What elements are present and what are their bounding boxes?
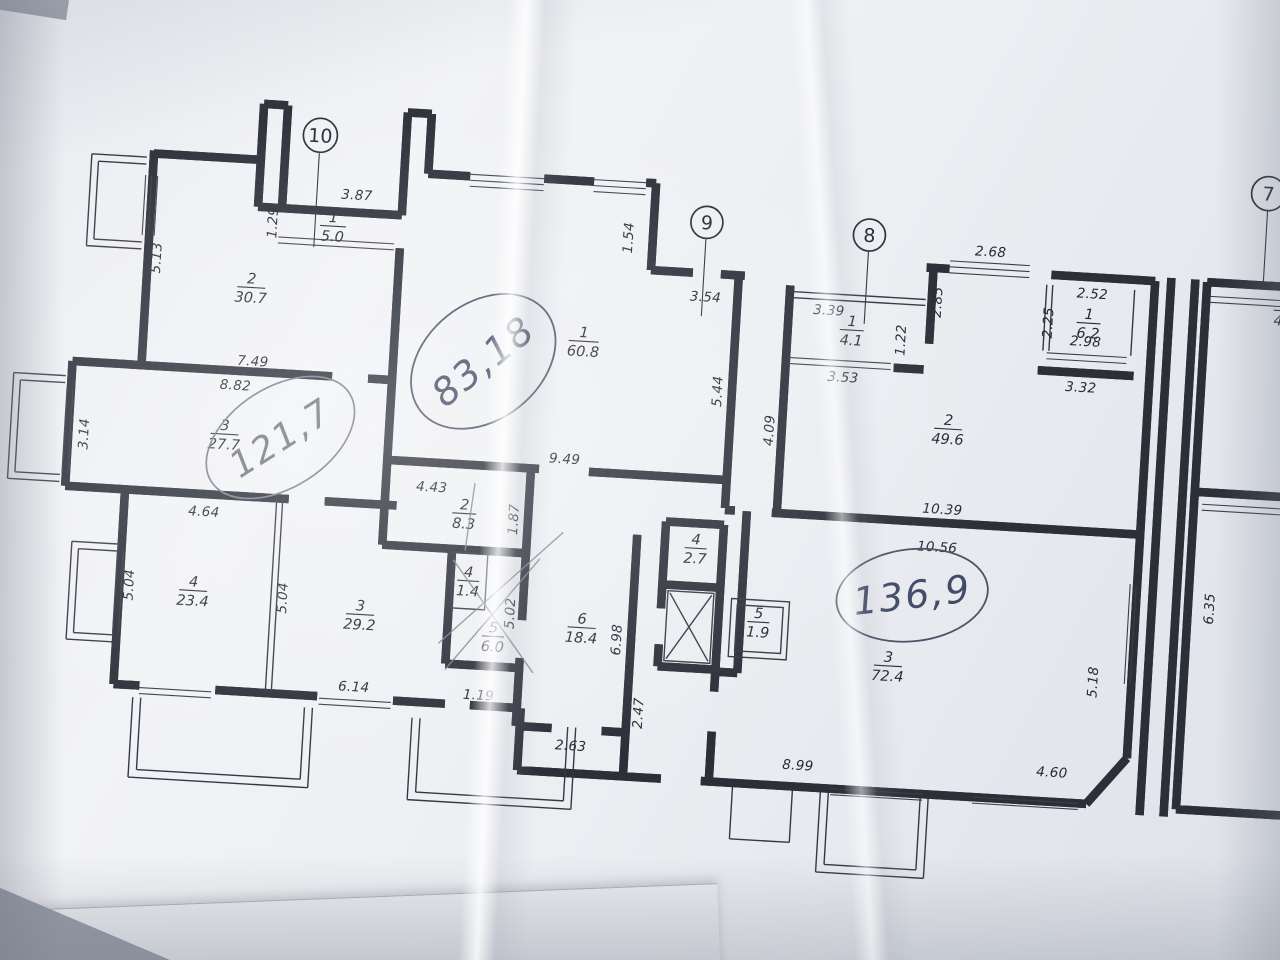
dim-label: 5.18 [1084,666,1102,698]
svg-text:1: 1 [1084,307,1094,324]
dim-label: 5.44 [709,375,727,407]
dim-label: 7.49 [237,353,269,371]
svg-text:2: 2 [943,413,953,430]
room-label: 160.8 [566,324,600,361]
svg-text:29.2: 29.2 [343,617,376,635]
svg-text:4: 4 [189,574,199,591]
axis-marker-10: 10 [308,125,333,148]
svg-text:23.4: 23.4 [176,593,209,611]
dim-label: 5.02 [501,597,519,629]
axis-marker-8: 8 [863,225,876,248]
dim-label: 5.13 [148,242,166,274]
room-label: 230.7 [234,271,269,308]
dim-label: 4.64 [188,503,220,521]
svg-text:1: 1 [579,325,589,342]
dim-label: 1.19 [462,687,494,705]
svg-text:8.3: 8.3 [452,516,476,533]
svg-text:18.4: 18.4 [564,630,597,648]
dim-label: 10.39 [922,501,963,519]
dim-label: 4.60 [1036,764,1068,782]
dim-label: 1.29 [264,207,282,239]
svg-text:136,9: 136,9 [851,567,974,624]
room-label: 329.2 [343,598,377,635]
svg-text:30.7: 30.7 [234,290,268,308]
svg-text:5: 5 [754,606,764,623]
axis-marker-7: 7 [1262,183,1275,206]
svg-text:4: 4 [691,532,701,549]
handwritten-total-pen-right: 136,9 [831,541,993,650]
floor-plan-drawing: 10 9 8 7 15.0 230.7 327.7 423.4 329.2 28… [0,0,1280,960]
dim-label: 2.98 [1069,333,1101,351]
svg-text:5.0: 5.0 [320,229,344,246]
svg-text:1: 1 [328,210,338,227]
room-label: 618.4 [564,611,598,648]
svg-text:2: 2 [460,497,470,514]
dim-label: 2.47 [630,697,648,729]
dim-label: 2.85 [929,286,947,318]
dim-label: 1.87 [505,503,523,535]
svg-text:6: 6 [577,611,587,628]
room-label: 28.3 [451,497,477,533]
dim-label: 2.52 [1076,285,1108,303]
room-label: 51.9 [746,605,771,641]
svg-text:6.0: 6.0 [480,639,504,656]
dim-label: 8.99 [782,757,814,775]
handwritten-total-pen-left: 83,18 [385,266,582,456]
dim-label: 9.49 [549,450,581,468]
svg-text:3: 3 [355,598,365,615]
dim-label: 2.68 [975,243,1007,261]
room-label: 42.7 [683,532,709,568]
room-label: 372.4 [871,649,905,686]
svg-text:49.6: 49.6 [931,431,964,449]
dim-label: 5.04 [274,582,292,614]
dim-label: 1.54 [620,222,638,254]
svg-text:83,18: 83,18 [423,307,543,416]
svg-text:4.5: 4.5 [1273,313,1280,330]
dim-label: 10.56 [917,538,958,556]
room-label: 41.4 [456,564,481,600]
dim-label: 3.14 [75,418,93,450]
dim-label: 3.32 [1065,379,1097,397]
svg-text:1.9: 1.9 [746,624,770,641]
dim-label: 6.14 [338,678,370,696]
dim-label: 2.63 [555,737,587,755]
dim-label: 3.87 [341,187,373,205]
dim-label: 4.09 [761,414,779,446]
dim-label: 3.39 [813,302,845,320]
svg-text:1: 1 [847,314,857,331]
dim-label: 6.98 [608,624,626,656]
dim-label: 8.82 [219,377,251,395]
partitions-and-balconies [0,150,1139,889]
svg-text:3: 3 [883,650,893,667]
dim-label: 6.35 [1201,593,1219,625]
svg-text:4: 4 [464,565,474,582]
dim-label: 3.53 [827,369,859,387]
svg-text:2: 2 [247,271,257,288]
dim-label: 4.43 [416,479,448,497]
room-label: 249.6 [931,412,965,449]
windows [46,149,1280,824]
dim-label: 2.25 [1040,307,1058,339]
dim-label: 1.22 [892,324,910,356]
svg-text:4.1: 4.1 [839,332,863,349]
svg-text:2.7: 2.7 [683,551,708,568]
svg-text:60.8: 60.8 [566,343,599,361]
axis-marker-9: 9 [700,212,713,235]
dim-label: 5.04 [120,569,138,601]
svg-text:72.4: 72.4 [871,668,904,686]
photo-of-floor-plan: 10 9 8 7 15.0 230.7 327.7 423.4 329.2 28… [0,0,1280,960]
room-label: 423.4 [176,574,210,611]
dim-label: 3.54 [689,289,721,307]
